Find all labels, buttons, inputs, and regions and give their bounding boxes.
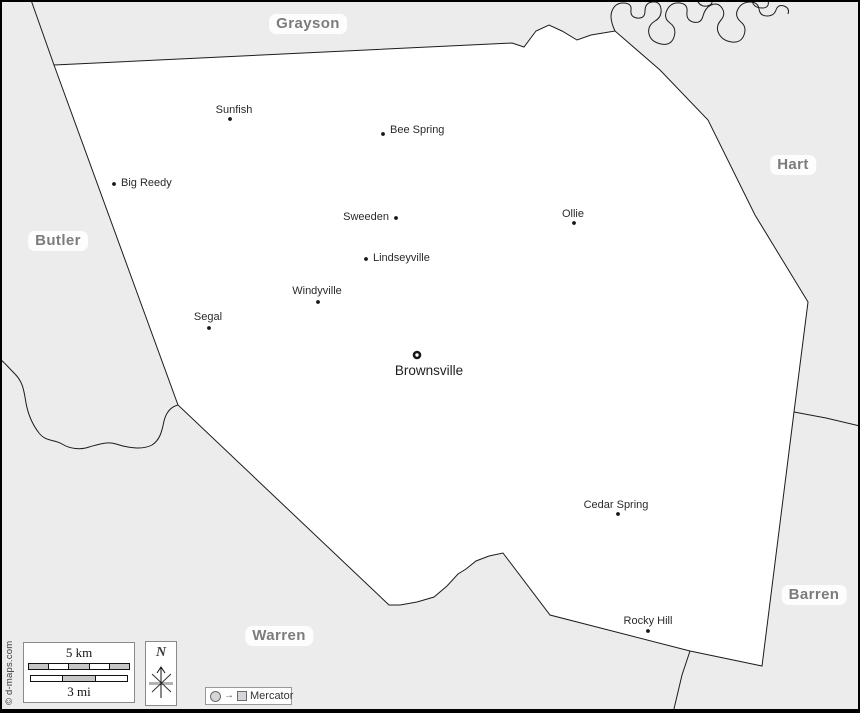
town-label: Ollie bbox=[562, 208, 584, 220]
scale-km-label: 5 km bbox=[24, 645, 134, 660]
map-canvas: SunfishBee SpringBig ReedySweedenOllieLi… bbox=[0, 0, 860, 713]
town-label: Lindseyville bbox=[373, 252, 430, 264]
region-label-barren: Barren bbox=[782, 585, 847, 605]
labels-layer: SunfishBee SpringBig ReedySweedenOllieLi… bbox=[0, 0, 860, 713]
town-label: Big Reedy bbox=[121, 177, 172, 189]
town-label: Sunfish bbox=[216, 104, 253, 116]
projection-arrow-icon: → bbox=[224, 691, 234, 701]
sphere-icon bbox=[210, 691, 221, 702]
plane-icon bbox=[237, 691, 247, 701]
town-label: Rocky Hill bbox=[624, 615, 673, 627]
scale-mi-label: 3 mi bbox=[24, 684, 134, 699]
region-label-grayson: Grayson bbox=[269, 14, 347, 34]
projection-badge: → Mercator bbox=[205, 687, 292, 705]
north-indicator: N bbox=[145, 641, 177, 706]
town-label: Bee Spring bbox=[390, 124, 444, 136]
scale-bar-km bbox=[28, 663, 130, 670]
town-label: Windyville bbox=[292, 285, 342, 297]
projection-label: Mercator bbox=[250, 690, 293, 702]
region-label-hart: Hart bbox=[770, 155, 816, 175]
region-label-warren: Warren bbox=[245, 626, 313, 646]
county-seat-label: Brownsville bbox=[395, 365, 463, 377]
scale-bar-mi bbox=[30, 675, 128, 682]
town-label: Sweeden bbox=[343, 211, 389, 223]
town-label: Cedar Spring bbox=[584, 499, 649, 511]
region-label-butler: Butler bbox=[28, 231, 88, 251]
copyright-text: © d-maps.com bbox=[4, 641, 15, 705]
town-label: Segal bbox=[194, 311, 222, 323]
north-letter: N bbox=[146, 645, 176, 661]
compass-icon bbox=[146, 661, 176, 701]
scale-bar: 5 km 3 mi bbox=[23, 642, 135, 703]
